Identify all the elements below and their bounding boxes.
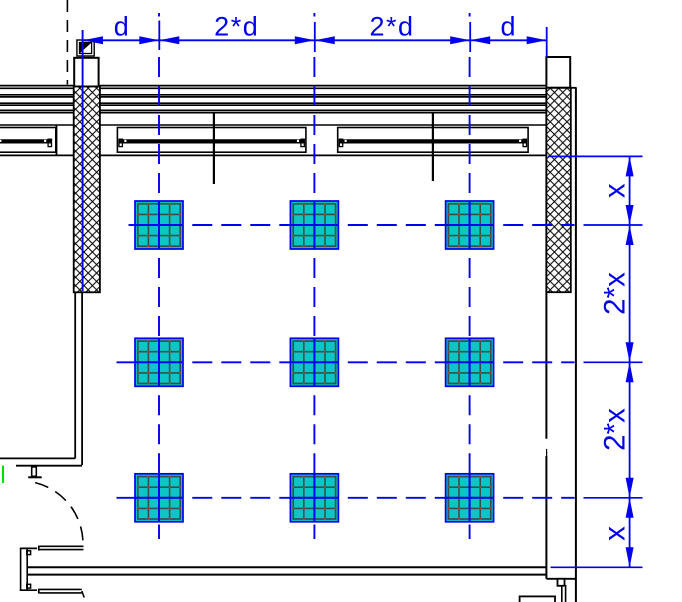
svg-text:d: d [500, 12, 515, 42]
svg-text:d: d [114, 12, 129, 42]
svg-text:x: x [599, 183, 632, 198]
svg-text:2*d: 2*d [369, 12, 414, 42]
svg-text:2*x: 2*x [599, 408, 632, 451]
svg-text:x: x [599, 526, 632, 541]
svg-text:2*d: 2*d [214, 12, 259, 42]
svg-text:2*x: 2*x [599, 272, 632, 315]
